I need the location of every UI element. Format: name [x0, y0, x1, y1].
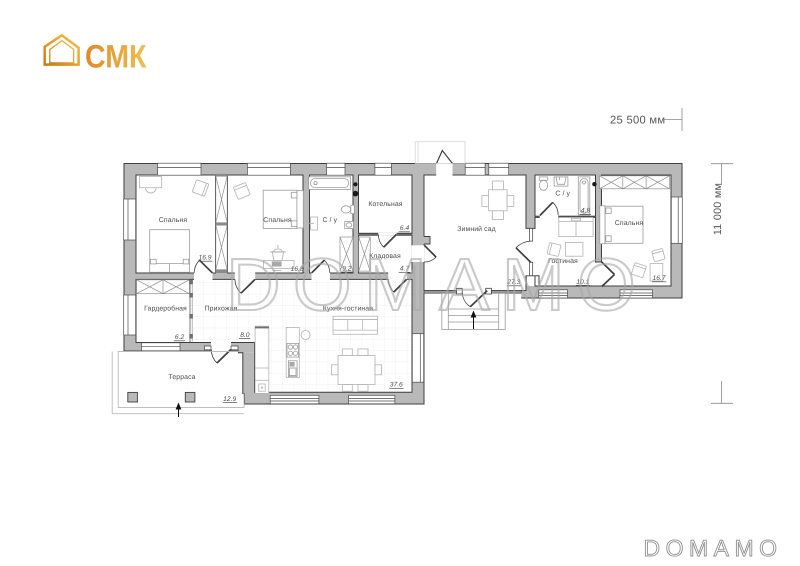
svg-text:25 500 мм: 25 500 мм	[610, 115, 665, 127]
svg-text:Терраса: Терраса	[168, 374, 195, 381]
svg-text:16.9: 16.9	[198, 255, 211, 262]
svg-text:12.9: 12.9	[223, 396, 236, 403]
svg-text:Спальня: Спальня	[615, 220, 644, 227]
svg-text:37.6: 37.6	[390, 382, 403, 389]
svg-text:6.2: 6.2	[175, 334, 185, 341]
svg-text:8.0: 8.0	[240, 332, 250, 339]
svg-text:DOMAMO: DOMAMO	[643, 535, 782, 561]
svg-text:11 000 мм: 11 000 мм	[712, 183, 724, 235]
svg-text:4.9: 4.9	[581, 208, 591, 215]
svg-text:DOMAMO: DOMAMO	[226, 243, 648, 326]
svg-text:Гардеробная: Гардеробная	[144, 304, 187, 312]
svg-text:Зимний сад: Зимний сад	[457, 225, 495, 233]
svg-text:СМК: СМК	[85, 39, 147, 75]
svg-text:16.7: 16.7	[652, 275, 665, 282]
svg-text:С / у: С / у	[322, 217, 337, 224]
svg-text:Котельная: Котельная	[368, 201, 402, 208]
svg-text:Спальня: Спальня	[263, 217, 292, 224]
svg-text:Спальня: Спальня	[159, 217, 188, 224]
svg-text:С / у: С / у	[555, 191, 570, 198]
svg-text:6.4: 6.4	[400, 225, 410, 232]
